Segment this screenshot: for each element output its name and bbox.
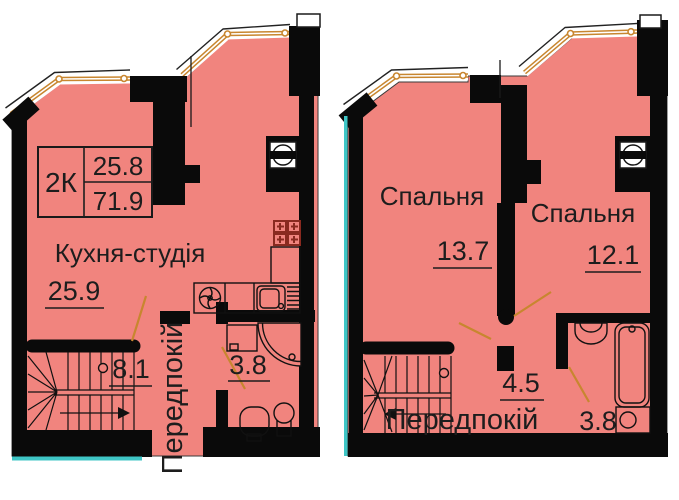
right-floor-plan: Спальня 13.7 Спальня 12.1 4.5 Передпокій… — [344, 15, 669, 457]
hallway-label: Передпокій — [157, 322, 189, 475]
level-area-value: 25.8 — [93, 151, 144, 181]
kitchen-area: 25.9 — [48, 276, 101, 306]
vent-shaft-icon — [270, 142, 296, 168]
stairs-hall-area: 8.1 — [112, 354, 150, 384]
vent-shaft-icon — [620, 142, 646, 168]
unit-type: 2К — [45, 167, 78, 198]
edge-accent — [12, 457, 142, 461]
hallway-label: Передпокій — [386, 404, 539, 436]
bedroom1-area: 13.7 — [437, 236, 490, 266]
edge-accent — [344, 116, 348, 456]
bedroom1-label: Спальня — [380, 181, 484, 211]
kitchen-label: Кухня-студія — [55, 238, 206, 268]
parapet-marker — [640, 15, 661, 28]
floor-plan-canvas: 2К 25.8 71.9 Кухня-студія 25.9 8.1 Перед… — [0, 0, 679, 500]
unit-info-table: 2К 25.8 71.9 — [38, 147, 152, 217]
bedroom2-label: Спальня — [531, 198, 635, 228]
hallway-area: 4.5 — [502, 368, 540, 398]
bedroom2-area: 12.1 — [587, 240, 640, 270]
floor-plan-drawing: 2К 25.8 71.9 Кухня-студія 25.9 8.1 Перед… — [0, 0, 679, 500]
parapet-marker — [297, 14, 320, 27]
left-floor-plan: 2К 25.8 71.9 Кухня-студія 25.9 8.1 Перед… — [6, 14, 321, 474]
bathroom-area: 3.8 — [579, 406, 617, 436]
total-area-value: 71.9 — [93, 186, 144, 216]
bathroom-area: 3.8 — [229, 350, 267, 380]
